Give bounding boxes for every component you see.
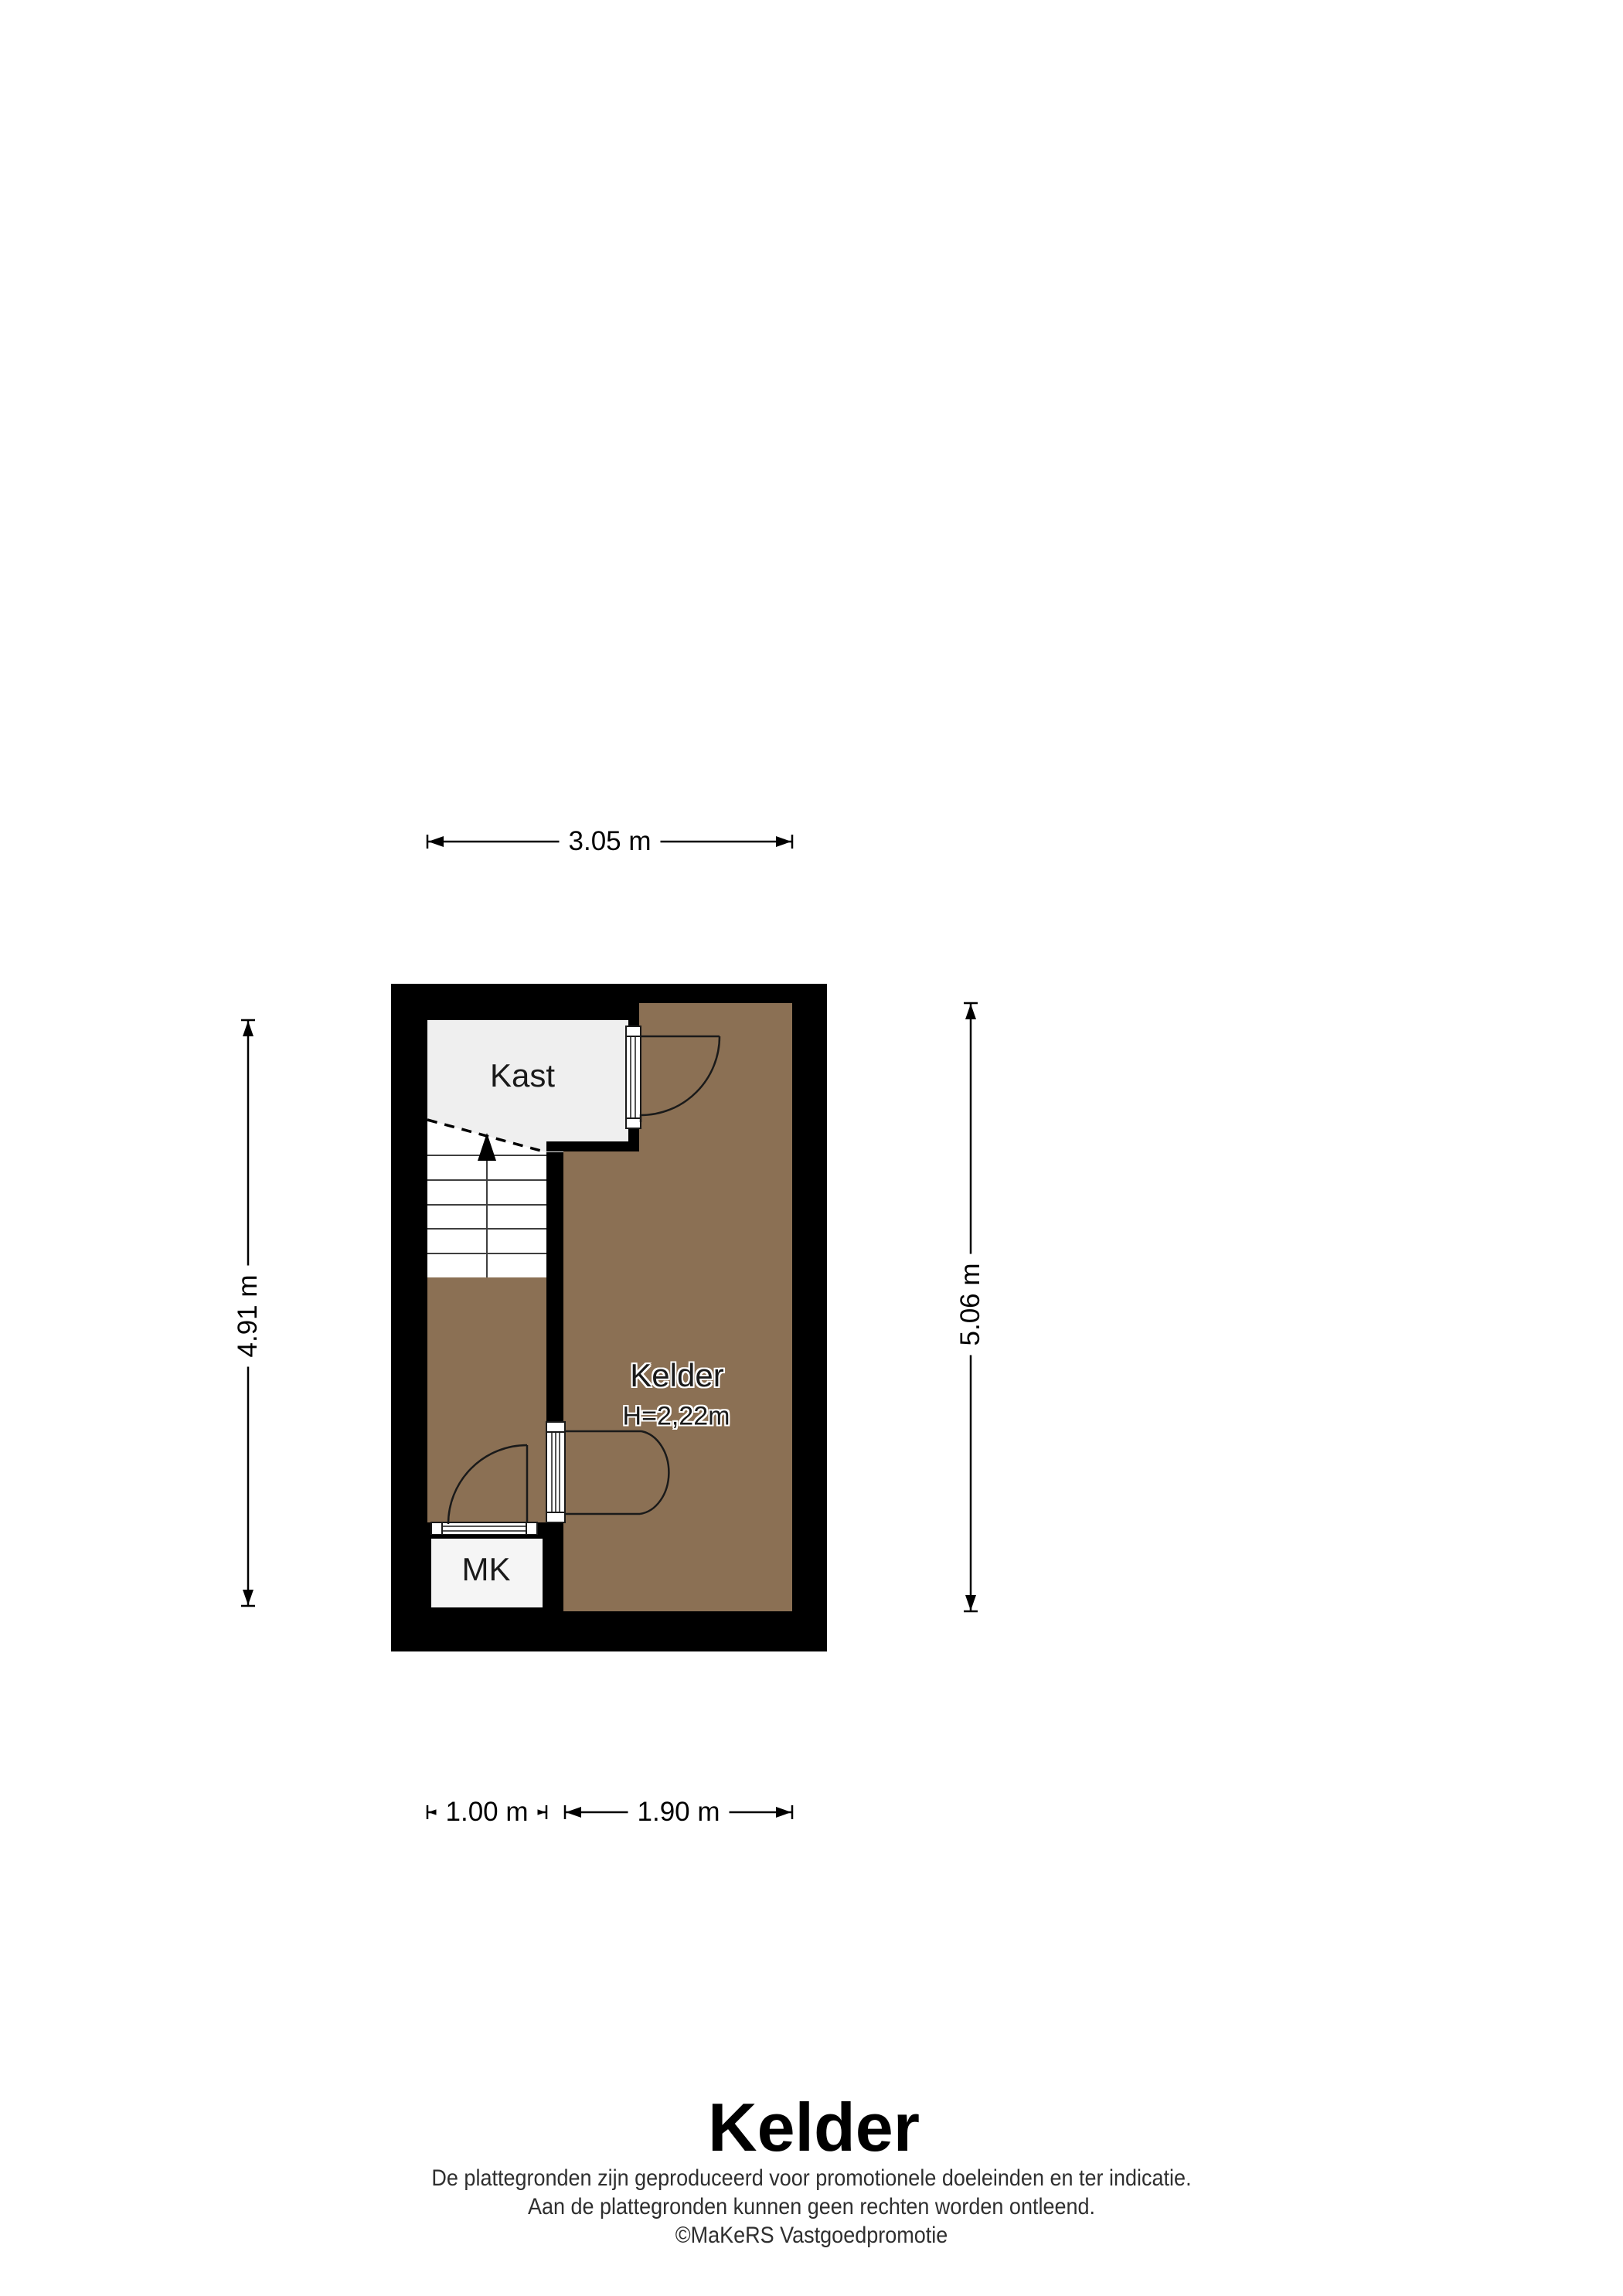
kelder-ceiling-height-label: H=2,22m [623, 1402, 730, 1432]
wall-below-kast [546, 1141, 639, 1151]
dimension-label-right: 5.06 m [955, 1254, 986, 1355]
dimension-label-top: 3.05 m [560, 826, 661, 857]
arrowhead [243, 1590, 253, 1605]
top-threshold-jamb-bottom [626, 1118, 641, 1128]
arrowhead [428, 836, 444, 847]
kelder-room-label: Kelder [630, 1357, 723, 1394]
disclaimer-line-2: Aan de plattegronden kunnen geen rechten… [431, 2192, 1191, 2221]
floorplan-page: Kast Kelder H=2,22m MK 3.05 m 4.91 m 5.0… [0, 0, 1623, 2296]
dimension-label-bottom-right: 1.90 m [628, 1797, 730, 1828]
disclaimer-line-1: De plattegronden zijn geproduceerd voor … [431, 2164, 1191, 2192]
top-threshold-jamb-top [626, 1026, 641, 1036]
page-title: Kelder [708, 2088, 920, 2167]
arrowhead [243, 1021, 253, 1036]
arrowhead [965, 1595, 976, 1611]
dimension-label-left: 4.91 m [233, 1266, 264, 1367]
dimension-label-bottom-left: 1.00 m [437, 1797, 538, 1828]
kelder-bottom-door-threshold [546, 1422, 565, 1522]
mk-threshold-strip [431, 1522, 537, 1535]
arrowhead [965, 1004, 976, 1019]
credit-line: ©MaKeRS Vastgoedpromotie [431, 2221, 1191, 2250]
mk-room-label: MK [462, 1551, 511, 1588]
mk-door-threshold [431, 1522, 537, 1535]
kast-room-label: Kast [490, 1057, 555, 1094]
floorplan-drawing [0, 0, 1623, 2296]
arrowhead [776, 836, 791, 847]
mk-threshold-jamb-left [431, 1522, 442, 1535]
arrowhead [566, 1807, 581, 1818]
disclaimer-text: De plattegronden zijn geproduceerd voor … [431, 2164, 1191, 2250]
top-threshold-strip [626, 1026, 641, 1128]
bottom-threshold-jamb-bottom [546, 1512, 565, 1522]
hall-floor [427, 1277, 546, 1522]
bottom-threshold-jamb-top [546, 1422, 565, 1432]
kelder-top-door-threshold [626, 1026, 641, 1128]
mk-threshold-jamb-right [526, 1522, 537, 1535]
arrowhead [776, 1807, 791, 1818]
